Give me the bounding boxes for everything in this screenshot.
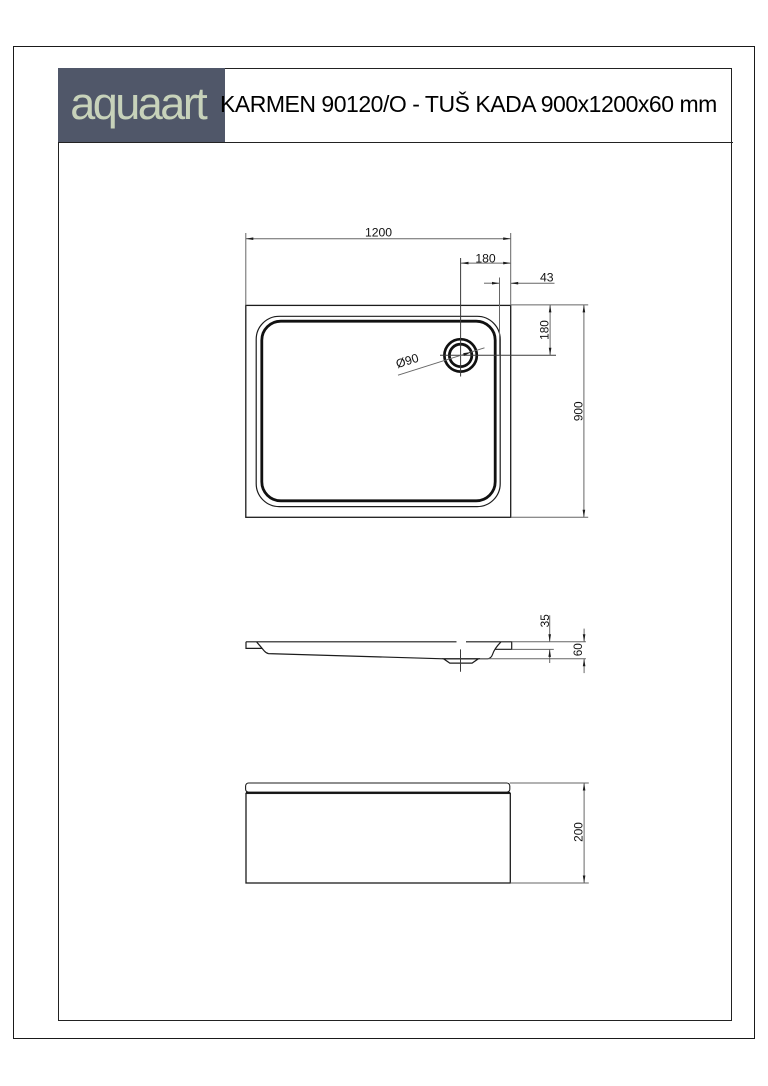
svg-text:43: 43 xyxy=(540,271,554,285)
svg-text:1200: 1200 xyxy=(365,226,392,240)
svg-text:900: 900 xyxy=(571,401,585,421)
svg-text:35: 35 xyxy=(538,614,552,628)
svg-text:Ø90: Ø90 xyxy=(394,351,420,371)
svg-text:180: 180 xyxy=(537,320,551,340)
svg-text:200: 200 xyxy=(571,822,585,842)
svg-text:60: 60 xyxy=(571,643,585,657)
svg-text:180: 180 xyxy=(475,251,496,265)
